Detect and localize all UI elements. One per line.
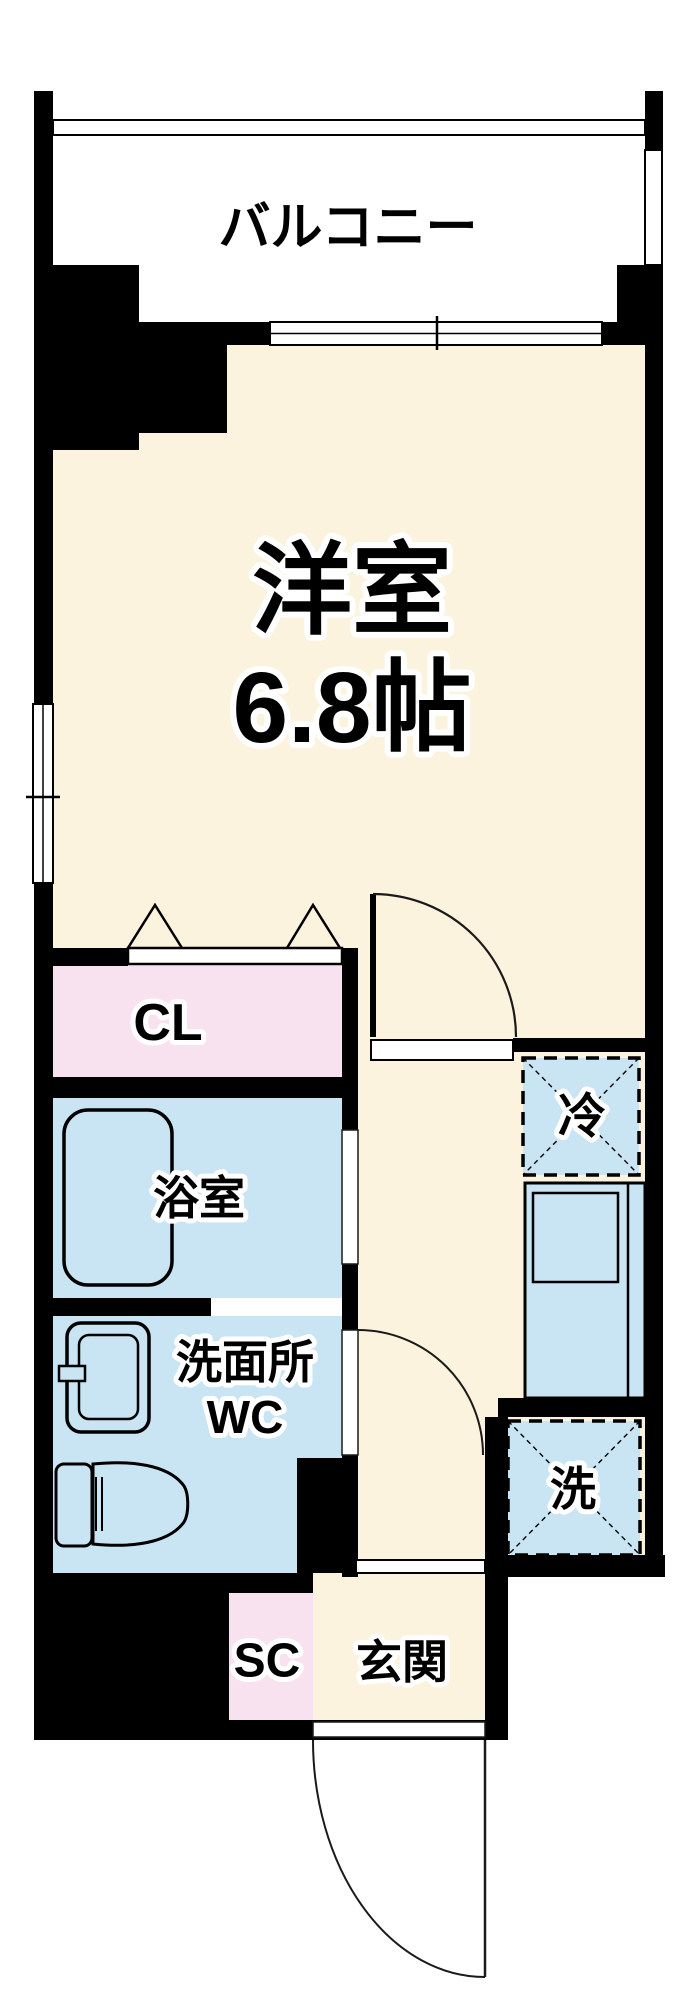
wall-closet-bottom xyxy=(34,1077,358,1098)
wall-room-corner-block xyxy=(34,322,227,433)
wall-balcony-corner-block xyxy=(53,265,139,322)
wall-left-lower xyxy=(34,883,53,1573)
wall-room-door-stub xyxy=(513,1038,662,1052)
wall-counter-stub xyxy=(498,1398,662,1417)
wall-window-jamb-left xyxy=(227,322,270,345)
sink-tap-icon xyxy=(59,1366,85,1381)
room-label: 洋室 xyxy=(252,535,452,647)
balcony-railing xyxy=(53,120,645,135)
fridge-label: 冷 xyxy=(558,1091,606,1144)
wall-washer-bottom xyxy=(485,1555,665,1577)
wall-bottom-left-block xyxy=(34,1573,229,1740)
entrance-sill xyxy=(356,1560,485,1573)
washer-label: 洗 xyxy=(550,1463,596,1515)
closet-folding-door-panel xyxy=(128,948,342,964)
wall-closet-left xyxy=(34,948,128,966)
wall-bath-divider xyxy=(34,1298,211,1316)
shoe-closet-label: SC xyxy=(234,1635,301,1688)
entry-door-arc xyxy=(313,1740,485,1977)
balcony-label: バルコニー xyxy=(219,199,478,257)
floor-plan-page: バルコニー 洋室 6.8帖 CL 浴室 洗面所 WC 冷 洗 SC 玄関 xyxy=(0,0,695,2000)
wall-shoe-closet-top xyxy=(229,1573,313,1593)
wall-washroom-corner xyxy=(297,1458,358,1573)
wall-right-corner-block xyxy=(617,265,663,345)
wall-entrance-right xyxy=(485,1417,508,1740)
room-door-leaf xyxy=(370,894,376,1037)
entrance-label: 玄関 xyxy=(356,1636,448,1688)
wall-room-corner-step xyxy=(34,433,139,450)
wall-window-jamb-right xyxy=(602,322,617,345)
bath-label: 浴室 xyxy=(153,1172,245,1224)
wall-right xyxy=(645,345,663,1577)
washroom-label: 洗面所 xyxy=(176,1336,314,1388)
closet-label: CL xyxy=(133,994,202,1052)
entry-door-opening xyxy=(313,1722,485,1737)
room-size-label: 6.8帖 xyxy=(232,652,471,764)
bath-door-opening xyxy=(342,1130,358,1264)
wc-label: WC xyxy=(207,1391,284,1443)
room-door-sill xyxy=(371,1040,513,1060)
washroom-door-opening xyxy=(342,1330,358,1455)
wall-right-top xyxy=(645,91,663,150)
floor-plan-drawing: バルコニー 洋室 6.8帖 CL 浴室 洗面所 WC 冷 洗 SC 玄関 xyxy=(0,0,695,2000)
balcony-side-railing xyxy=(645,150,662,265)
